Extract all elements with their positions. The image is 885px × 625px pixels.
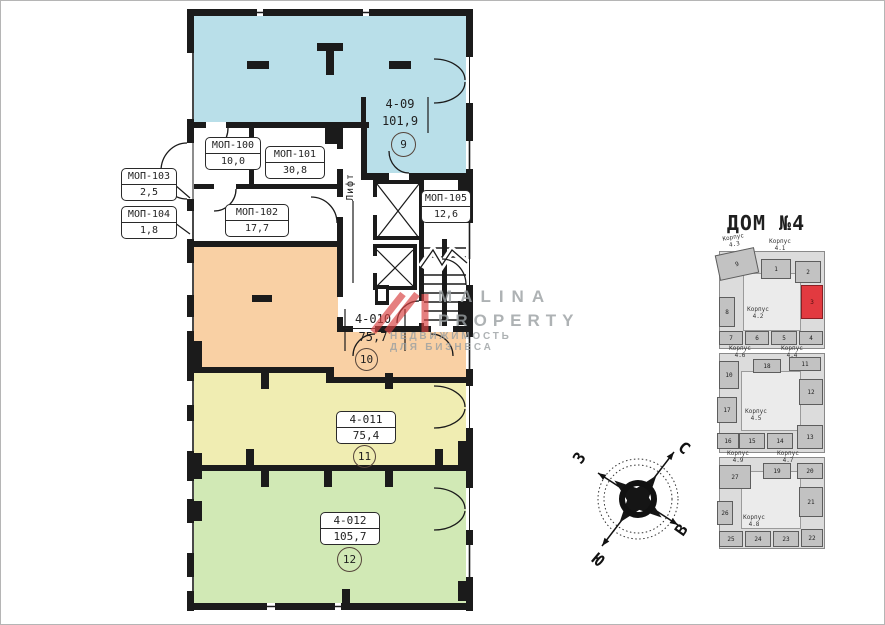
stair-break-mask bbox=[421, 250, 467, 267]
room-label-mop-101: МОП-10130,8 bbox=[265, 146, 325, 179]
minimap-block: 27 bbox=[719, 465, 751, 489]
minimap-block: 14 bbox=[767, 433, 793, 449]
minimap-korpus-label: Корпус 4.1 bbox=[765, 239, 795, 253]
minimap-korpus-label: Корпус 4.5 bbox=[741, 409, 771, 423]
unit-label-4-012: 4-012105,7 bbox=[320, 512, 380, 545]
minimap-block: 8 bbox=[719, 297, 735, 327]
minimap-korpus-label: Корпус 4.6 bbox=[725, 346, 755, 360]
minimap-block: 23 bbox=[773, 531, 799, 547]
minimap-block: 26 bbox=[717, 501, 733, 525]
stair-break-line bbox=[421, 250, 467, 267]
minimap-block: 4 bbox=[799, 331, 823, 345]
minimap-block: 19 bbox=[763, 463, 791, 479]
room-label-mop-100: МОП-10010,0 bbox=[205, 137, 261, 170]
minimap-korpus-label: Корпус 4.4 bbox=[777, 346, 807, 360]
unit-4-011-region bbox=[194, 373, 326, 465]
lift-label: Лифт bbox=[345, 147, 356, 201]
minimap-block: 12 bbox=[799, 379, 823, 405]
unit-label-4-011: 4-01175,4 bbox=[336, 411, 396, 444]
minimap-title: ДОМ №4 bbox=[711, 211, 821, 235]
compass-west-label: З bbox=[569, 448, 590, 467]
watermark-brand-1: MALINA bbox=[438, 287, 552, 307]
compass-star-icon bbox=[614, 475, 661, 522]
minimap-block: 17 bbox=[717, 397, 737, 423]
stair-treads bbox=[424, 248, 466, 320]
minimap-block: 5 bbox=[771, 331, 797, 345]
minimap-block: 20 bbox=[797, 463, 823, 479]
minimap-block: 6 bbox=[745, 331, 769, 345]
minimap-block: 13 bbox=[797, 425, 823, 449]
minimap-block: 7 bbox=[719, 331, 743, 345]
room-label-mop-105: МОП-10512,6 bbox=[421, 190, 471, 223]
unit-label-4-09: 4-09101,9 bbox=[373, 96, 427, 130]
compass-rose: С Ю З В bbox=[561, 421, 721, 581]
compass-south-label: Ю bbox=[588, 550, 608, 571]
watermark-brand-2: PROPERTY bbox=[438, 311, 580, 331]
minimap-block: 18 bbox=[753, 359, 781, 373]
minimap-block: 25 bbox=[719, 531, 743, 547]
minimap-block: 10 bbox=[719, 361, 739, 389]
unit-number-badge-10: 10 bbox=[355, 348, 378, 371]
unit-number-badge-9: 9 bbox=[391, 132, 416, 157]
shaft-void bbox=[378, 289, 386, 301]
unit-number-badge-11: 11 bbox=[353, 445, 376, 468]
room-label-mop-104: МОП-1041,8 bbox=[121, 206, 177, 239]
minimap-block-highlight: 3 bbox=[801, 285, 823, 319]
minimap-block: 22 bbox=[801, 529, 823, 547]
minimap-korpus-label: Корпус 4.9 bbox=[723, 451, 753, 465]
room-label-mop-103: МОП-1032,5 bbox=[121, 168, 177, 201]
unit-number-badge-12: 12 bbox=[337, 547, 362, 572]
minimap-block: 15 bbox=[739, 433, 765, 449]
minimap-courtyard-1 bbox=[743, 273, 801, 331]
compass-east-label: В bbox=[671, 520, 692, 539]
watermark-tagline: НЕДВИЖИМОСТЬ ДЛЯ БИЗНЕСА bbox=[390, 331, 512, 353]
minimap-block: 24 bbox=[745, 531, 771, 547]
minimap-block: 16 bbox=[717, 433, 739, 449]
unit-4-010-region bbox=[194, 247, 338, 367]
room-label-mop-102: МОП-10217,7 bbox=[225, 204, 289, 237]
minimap-korpus-label: Корпус 4.8 bbox=[739, 515, 769, 529]
compass-north-label: С bbox=[674, 438, 694, 459]
elevator-icon bbox=[377, 184, 419, 286]
minimap-korpus-label: Корпус 4.7 bbox=[773, 451, 803, 465]
floorplan-image: МОП-10010,0 МОП-10130,8 МОП-10217,7 МОП-… bbox=[0, 0, 885, 625]
minimap-block: 1 bbox=[761, 259, 791, 279]
minimap-block: 2 bbox=[795, 261, 821, 283]
minimap-block: 21 bbox=[799, 487, 823, 517]
minimap-korpus-label: Корпус 4.2 bbox=[743, 307, 773, 321]
